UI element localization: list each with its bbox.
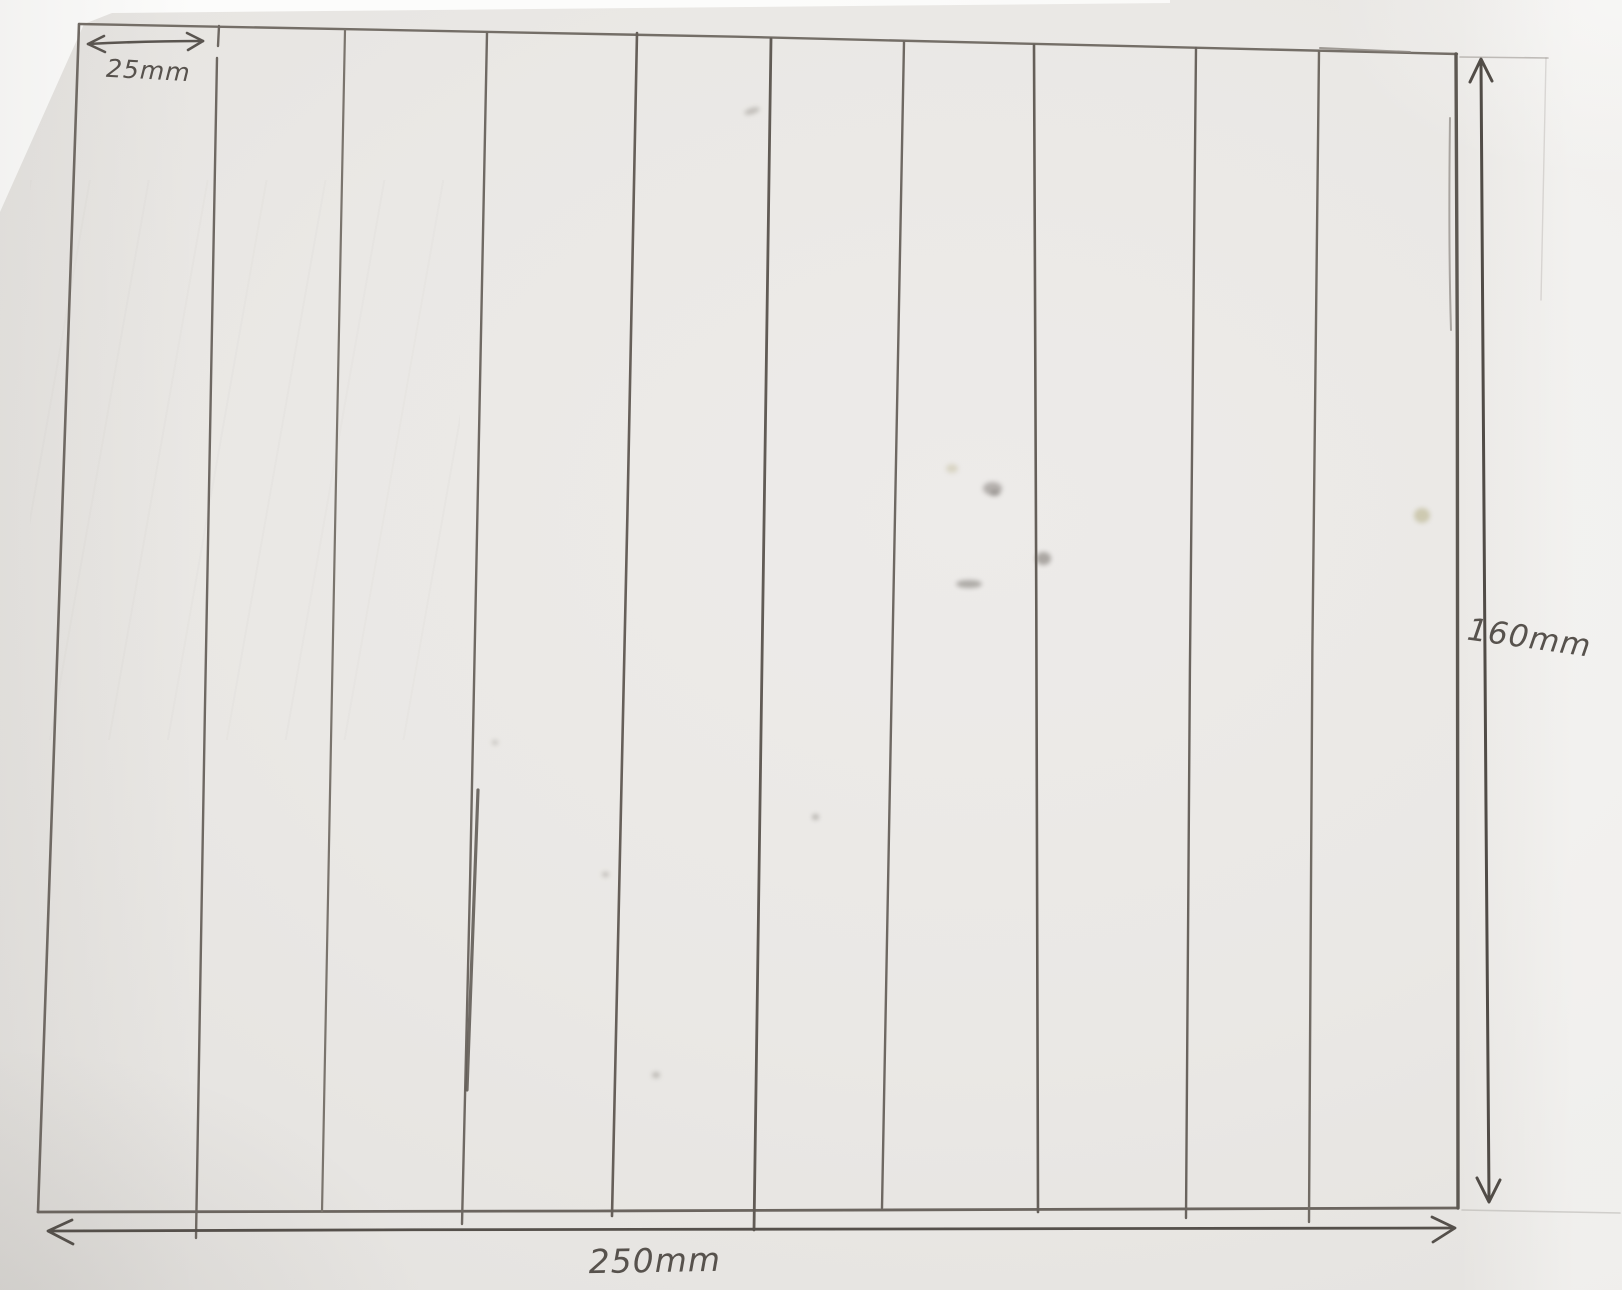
divider-line bbox=[1186, 48, 1196, 1218]
crease-line bbox=[1462, 1210, 1620, 1213]
right-edge-retrace-line bbox=[1449, 118, 1451, 330]
left-edge-line bbox=[38, 24, 79, 1212]
arrowhead-right-icon bbox=[1432, 1217, 1455, 1242]
divider-line bbox=[612, 33, 637, 1216]
crease-line bbox=[1460, 57, 1548, 58]
strip-width-dimension bbox=[88, 33, 203, 52]
width-dimension-line bbox=[49, 1227, 1454, 1231]
right-edge-line bbox=[1456, 54, 1458, 1208]
divider-line bbox=[322, 30, 345, 1212]
divider-line bbox=[1034, 45, 1038, 1212]
crease-line bbox=[1541, 58, 1546, 300]
width-dimension bbox=[48, 1217, 1455, 1244]
strip-divider-lines bbox=[196, 26, 1319, 1238]
top-edge-line bbox=[79, 24, 1457, 54]
panel-outline bbox=[38, 24, 1458, 1212]
divider-line bbox=[882, 42, 904, 1208]
strip-width-label: 25mm bbox=[105, 54, 191, 87]
divider-line bbox=[196, 58, 217, 1238]
divider-line bbox=[1309, 51, 1319, 1222]
divider-line bbox=[754, 39, 771, 1230]
strip-width-dimension-line bbox=[88, 41, 203, 44]
pencil-sketch-svg: 25mm 160mm 250mm bbox=[0, 0, 1622, 1290]
width-label: 250mm bbox=[588, 1240, 721, 1281]
bottom-edge-line bbox=[38, 1208, 1458, 1212]
divider-line bbox=[462, 33, 487, 1224]
photo-of-sketch: 25mm 160mm 250mm bbox=[0, 0, 1622, 1290]
divider-line bbox=[218, 26, 219, 46]
